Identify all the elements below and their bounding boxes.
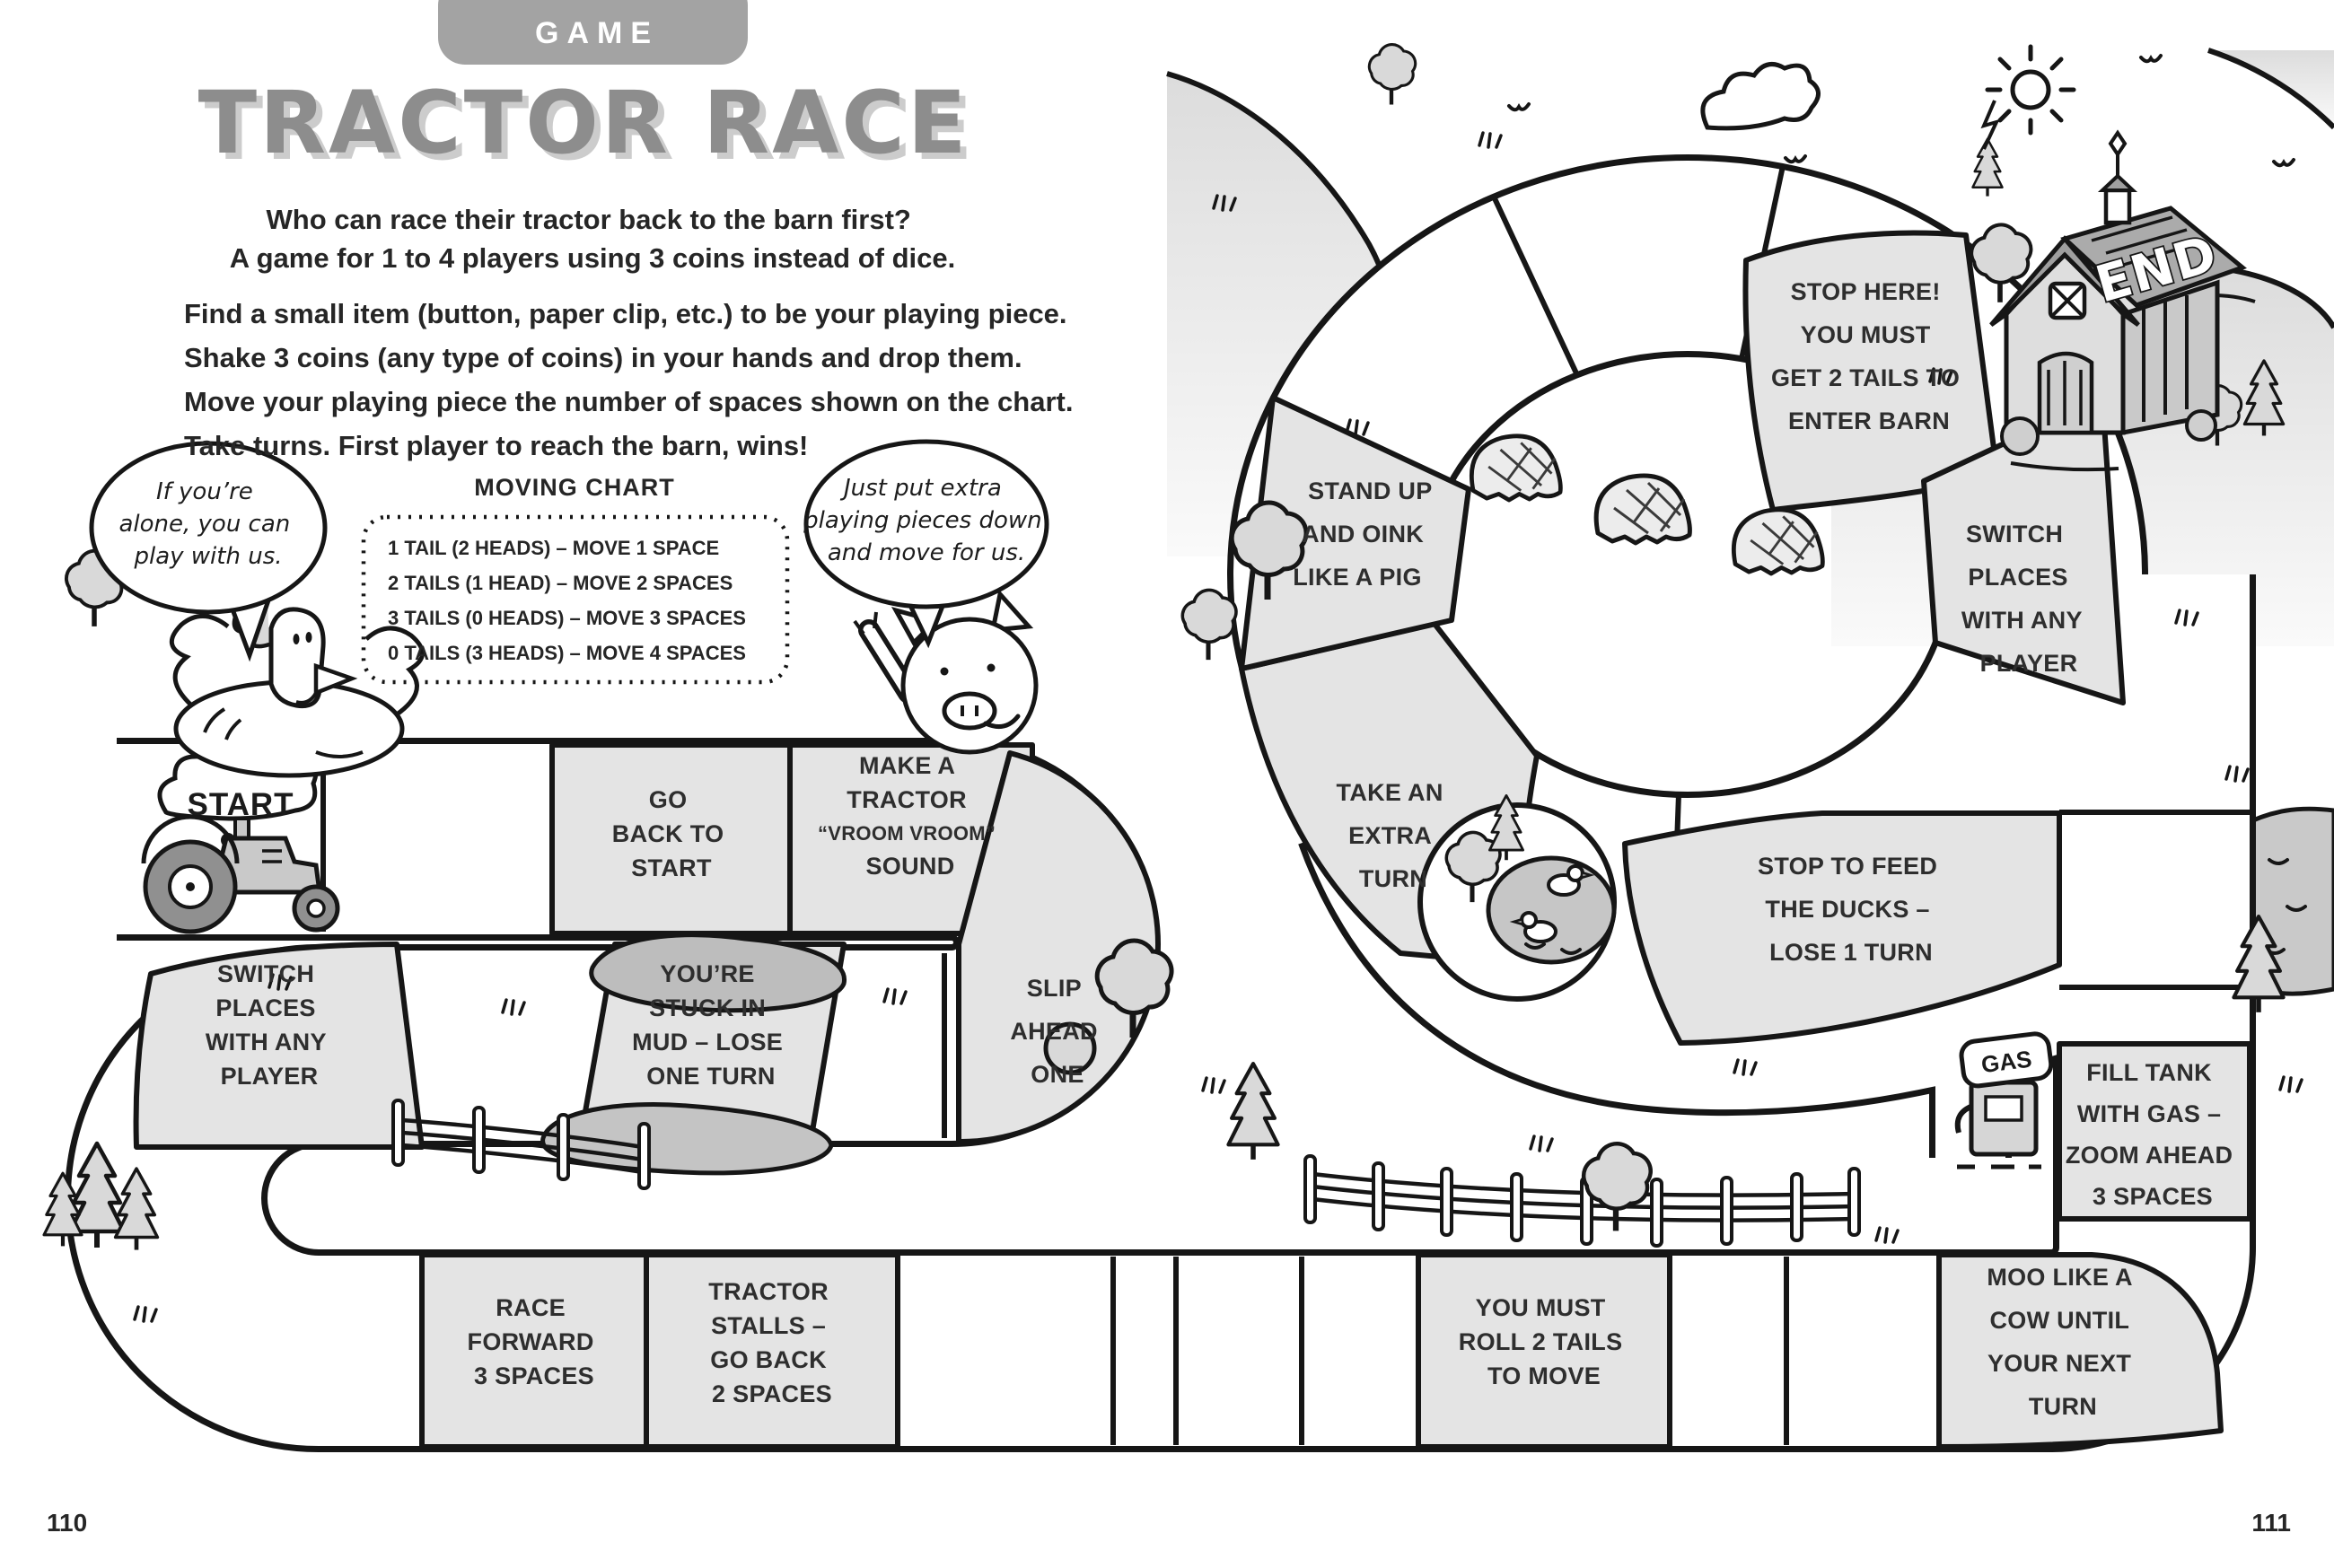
hay-bale [1733,510,1822,574]
cell-stand-up-oink: STAND UP AND OINK LIKE A PIG [1293,477,1439,591]
bird-icon [2141,56,2161,61]
cell-stop-to-feed: STOP TO FEED THE DUCKS – LOSE 1 TURN [1758,853,1944,966]
barn: END [1991,133,2242,469]
moving-chart-title: MOVING CHART [474,474,675,501]
bird-icon [1509,104,1529,109]
page-title: TRACTOR RACE [198,73,970,173]
cloud-icon [1703,65,1819,128]
hill-pine [1973,139,2003,197]
hill-tree [1369,45,1415,105]
sun-icon [1987,47,2074,133]
chicken-character [171,600,422,775]
barn-cupola [2106,190,2129,223]
page-number-left: 110 [47,1509,87,1537]
subtitle: Who can race their tractor back to the b… [230,204,956,274]
page-number-right: 111 [2251,1509,2291,1537]
bird-icon [2274,160,2294,165]
book-spread: END GAS START [0,0,2334,1568]
game-badge-label: GAME [535,16,659,50]
moving-chart: MOVING CHART 1 TAIL (2 HEADS) – MOVE 1 S… [364,474,787,682]
hay-bale [1471,436,1560,500]
gas-pump: GAS [1957,1032,2053,1167]
fence-right [1305,1156,1859,1246]
moving-chart-rows: 1 TAIL (2 HEADS) – MOVE 1 SPACE 2 TAILS … [388,537,751,664]
hay-bale [1596,476,1689,543]
sky-decor [1509,47,2294,165]
pig-character [855,594,1036,752]
duck-pond [1488,858,1614,962]
instructions: Find a small item (button, paper clip, e… [184,298,1081,461]
page-header: GAME TRACTOR RACE TRACTOR RACE Who can r… [184,0,1081,461]
bird-icon [1786,156,1805,162]
tractor-race-board: END GAS START [0,0,2334,1568]
